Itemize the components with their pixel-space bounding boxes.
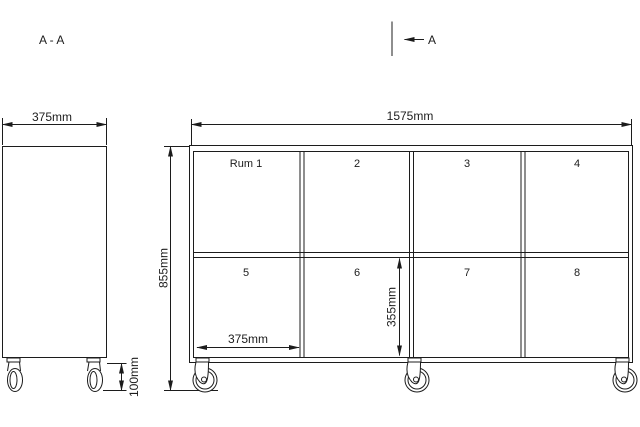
section-cut-label: A — [428, 33, 436, 47]
technical-drawing-canvas: A - A A 375mm 100mm — [0, 0, 640, 427]
front-view: Rum 1 2 3 4 5 6 7 8 1575mm 855mm 375mm — [157, 109, 638, 392]
compartment-height-dimension-label: 355mm — [385, 287, 399, 327]
compartment-label: 5 — [243, 267, 249, 279]
side-view: 375mm 100mm — [3, 110, 142, 397]
caster-wheel — [405, 358, 429, 392]
compartment-label: 6 — [354, 267, 360, 279]
front-view-frame-outer — [190, 146, 633, 363]
side-depth-dimension: 375mm — [3, 110, 107, 145]
compartment-label: 4 — [574, 158, 580, 170]
compartment-label: 8 — [574, 267, 580, 279]
caster-wheel — [87, 358, 103, 392]
side-view-body — [3, 147, 107, 358]
caster-height-dimension-label: 100mm — [127, 357, 141, 397]
caster-height-dimension: 100mm — [103, 357, 141, 397]
compartment-label: 3 — [464, 158, 470, 170]
caster-wheel — [7, 358, 23, 392]
compartment-label: 7 — [464, 267, 470, 279]
caster-wheel — [193, 358, 217, 392]
front-height-dimension-label: 855mm — [157, 248, 171, 288]
section-view-title: A - A — [39, 33, 64, 47]
drawing-sheet: A - A A 375mm 100mm — [0, 0, 640, 427]
compartment-label: Rum 1 — [230, 158, 262, 170]
compartment-width-dimension-label: 375mm — [228, 332, 268, 346]
compartment-label: 2 — [354, 158, 360, 170]
caster-wheel — [613, 358, 637, 392]
front-width-dimension: 1575mm — [192, 109, 632, 145]
front-width-dimension-label: 1575mm — [387, 109, 434, 123]
side-depth-dimension-label: 375mm — [32, 110, 72, 124]
section-cut-marker: A — [392, 22, 436, 57]
